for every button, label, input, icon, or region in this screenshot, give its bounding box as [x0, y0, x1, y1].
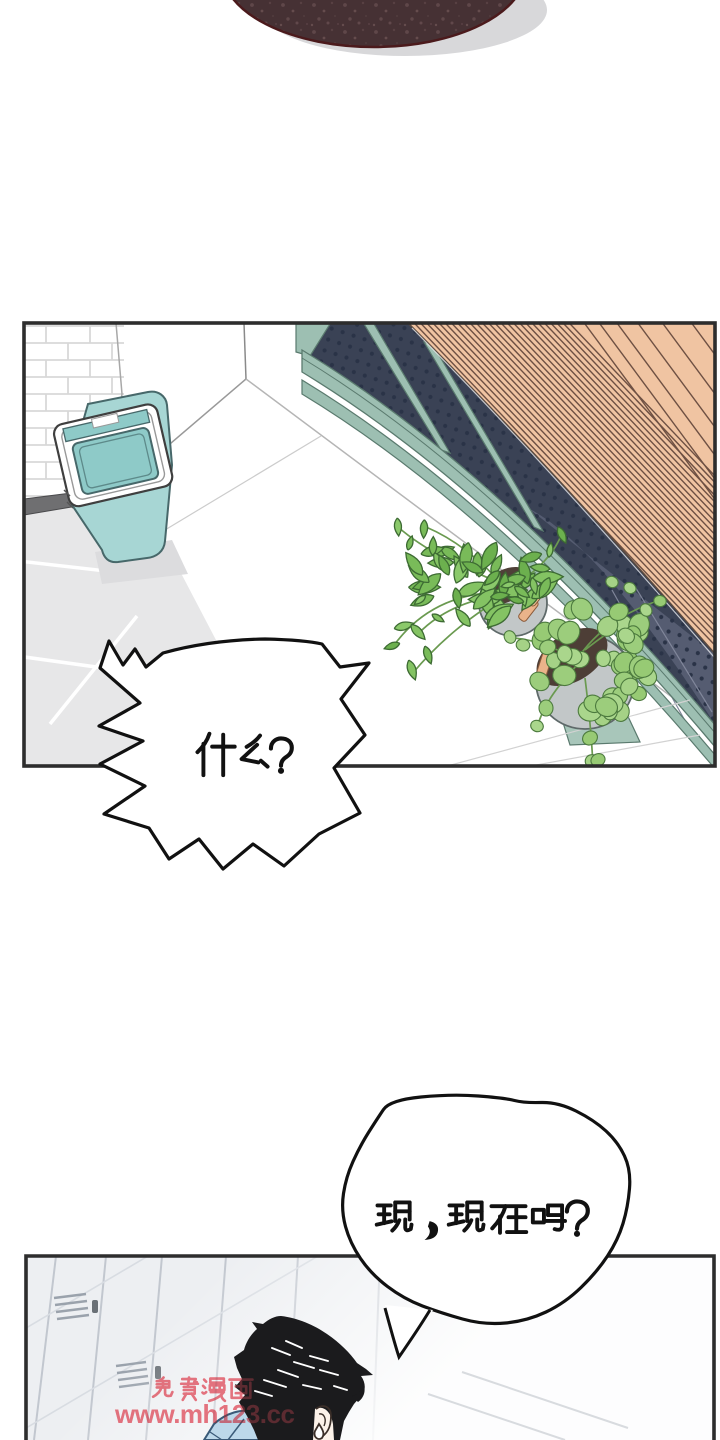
svg-text:www.mh123.cc: www.mh123.cc — [114, 1399, 294, 1429]
